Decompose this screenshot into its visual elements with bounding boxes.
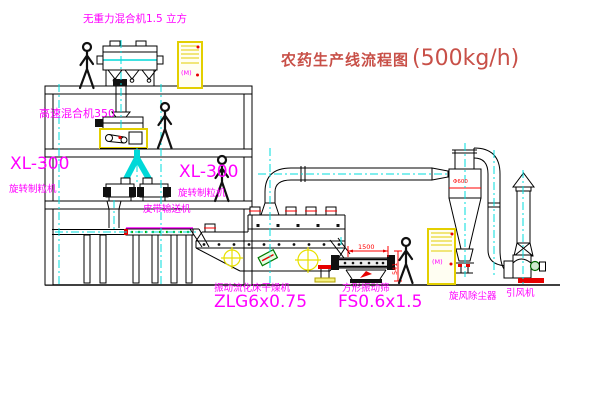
dimension-screen-length: 1500 bbox=[358, 244, 375, 251]
center-mark-right bbox=[295, 247, 321, 273]
label-granulator-right-name: 旋转制粒机 bbox=[178, 189, 226, 199]
label-gravity-mixer: 无重力混合机1.5 立方 bbox=[83, 14, 187, 25]
center-mark-left bbox=[221, 247, 243, 269]
label-dryer-model: ZLG6x0.75 bbox=[214, 294, 307, 311]
worker-second-floor bbox=[158, 103, 172, 148]
worker-screen bbox=[399, 238, 413, 283]
diagram-title-capacity: (500kg/h) bbox=[412, 46, 519, 71]
label-granulator-left-name: 旋转制粒机 bbox=[9, 185, 57, 195]
worker-top-floor bbox=[80, 43, 94, 88]
label-granulator-right-model: XL-300 bbox=[179, 164, 238, 181]
label-high-speed-mixer: 高速混合机350 bbox=[39, 108, 115, 119]
diagram-title: 农药生产线流程图 (500kg/h) bbox=[281, 46, 519, 71]
diagram-canvas: 农药生产线流程图 (500kg/h) 无重力混合机1.5 立方 高速混合机350… bbox=[0, 0, 600, 403]
gravity-mixer-machine bbox=[97, 41, 163, 112]
control-cabinet-ground bbox=[428, 229, 455, 284]
dryer-vibrator-component bbox=[258, 250, 277, 266]
label-cyclone: 旋风除尘器 bbox=[449, 292, 497, 302]
cabinet-ground-motor-symbol: (M) bbox=[432, 259, 443, 266]
label-fan: 引风机 bbox=[506, 289, 535, 299]
induced-draft-fan-machine bbox=[504, 255, 546, 283]
cabinet-top-motor-symbol: (M) bbox=[181, 70, 192, 77]
dryer-deck-dots bbox=[203, 224, 341, 246]
label-belt-conveyor: 皮带输送机 bbox=[143, 205, 191, 215]
granulator-right-machine bbox=[137, 178, 171, 201]
granulator-left-machine bbox=[103, 178, 136, 201]
belt-conveyor-machine bbox=[124, 228, 193, 283]
cyclone-size-tag: Φ600 bbox=[453, 180, 468, 186]
fluid-bed-dryer-machine bbox=[190, 207, 345, 282]
label-granulator-left-model: XL-300 bbox=[10, 156, 69, 173]
dimension-screen-height: 541 bbox=[392, 263, 399, 275]
diagram-title-text: 农药生产线流程图 bbox=[281, 49, 409, 70]
label-screen-model: FS0.6x1.5 bbox=[338, 294, 422, 311]
control-cabinet-top bbox=[178, 42, 202, 88]
